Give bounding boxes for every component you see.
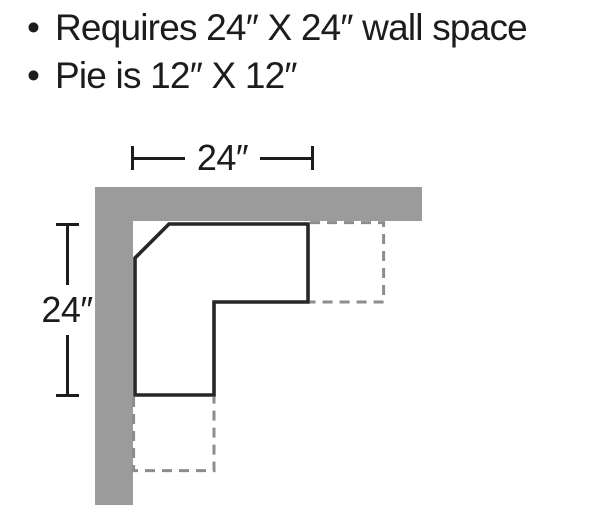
pie-cabinet-outline bbox=[135, 224, 308, 395]
cabinet-plan-svg bbox=[0, 0, 600, 520]
dashed-extension-bottom bbox=[134, 397, 214, 471]
wall-space-diagram: 24″ 24″ bbox=[0, 0, 600, 520]
dashed-extension-right bbox=[310, 223, 384, 302]
